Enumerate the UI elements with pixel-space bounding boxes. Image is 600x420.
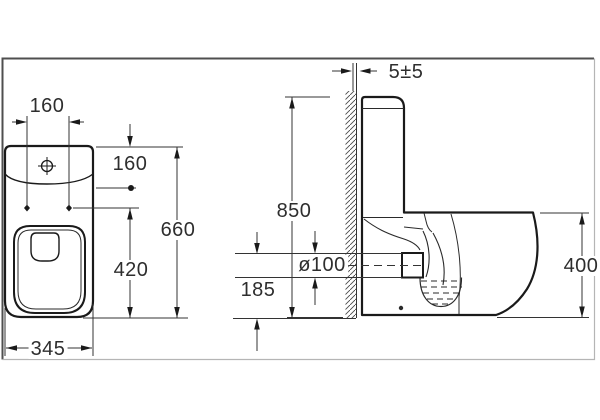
fixing-dot <box>399 306 403 310</box>
technical-drawing-page: 160 160 660 420 345 5±5 850 185 ø100 400 <box>0 0 600 420</box>
dim-label-160-inlet: 160 <box>111 154 150 174</box>
reference-dot <box>128 185 134 191</box>
dim-label-660: 660 <box>159 220 198 240</box>
dim-label-345: 345 <box>29 339 68 359</box>
wall-hatching <box>346 63 357 318</box>
dim-label-outlet-diameter: ø100 <box>296 255 348 275</box>
dim-label-gap-5-5: 5±5 <box>387 62 426 82</box>
dim-label-420: 420 <box>112 260 151 280</box>
dim-label-185: 185 <box>239 280 278 300</box>
dim-label-400: 400 <box>562 256 600 276</box>
front-view-toilet <box>5 146 93 317</box>
side-view-toilet <box>362 97 538 315</box>
dim-label-160-top: 160 <box>28 96 67 116</box>
dim-label-850: 850 <box>275 201 314 221</box>
